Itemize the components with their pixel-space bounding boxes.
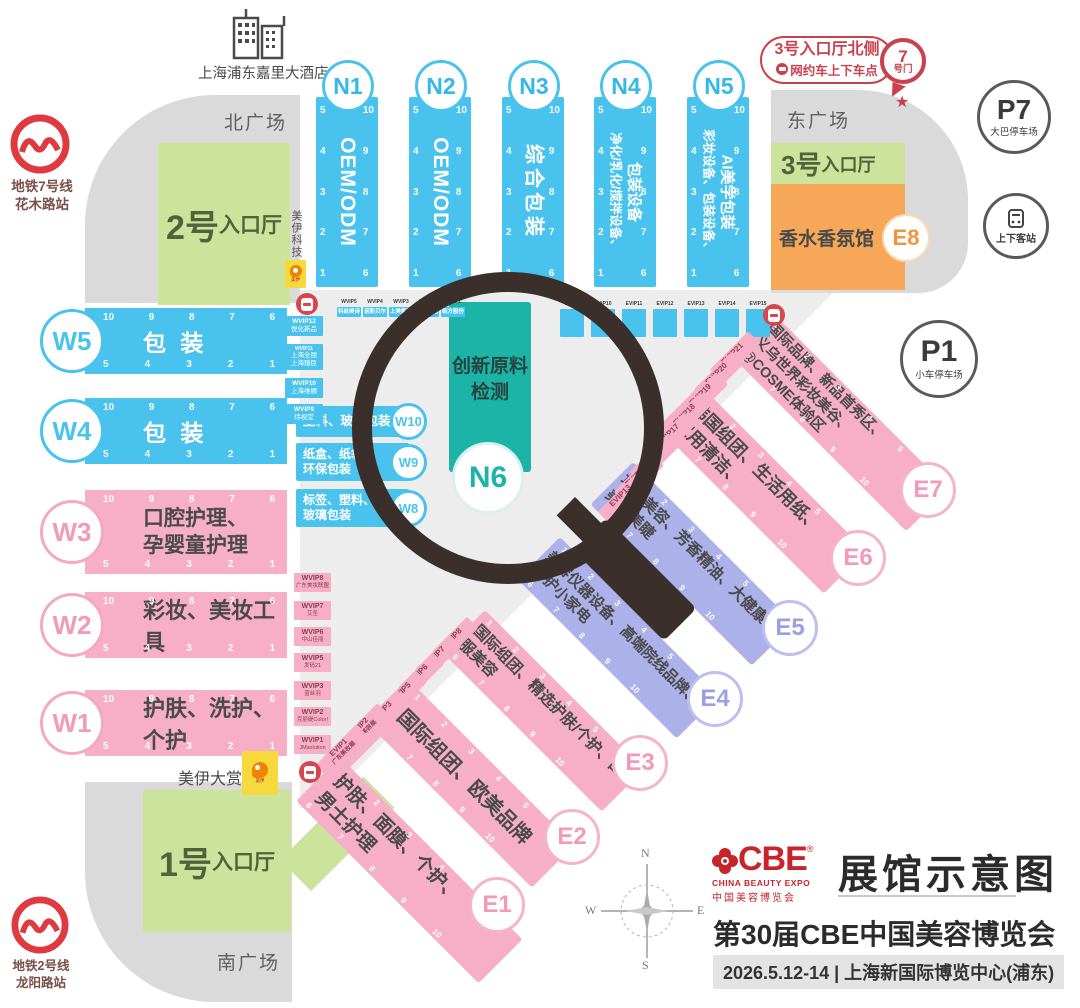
hall-circle-e5[interactable]: E5 (762, 600, 818, 656)
hall-w3[interactable]: 109876 54321 口腔护理、 孕婴童护理 (85, 490, 287, 574)
gate-7-star: ★ (895, 92, 909, 112)
hall-w1[interactable]: 109876 54321 护肤、洗护、个护 (85, 690, 287, 756)
booth-wvip3[interactable]: WVIP3 蓝丝羽 (294, 681, 331, 700)
south-plaza-label: 南广场 (217, 948, 280, 975)
metro-line7-icon (10, 114, 70, 174)
hall-n1-label: OEM/ODM (333, 137, 361, 247)
hall-circle-n1[interactable]: N1 (322, 60, 374, 112)
gate-7-pin: 7 号门 (880, 38, 926, 84)
meiyi-tech-label: 美伊科技 (288, 210, 304, 258)
booth-wvip9[interactable]: WVIP9 炜视堂 (285, 404, 323, 424)
metro-line2-label: 地铁2号线 龙阳路站 (0, 958, 82, 992)
meiyi-tech-badge: 美伊 (285, 260, 306, 288)
parking-p7[interactable]: P7 大巴停车场 (977, 80, 1051, 154)
entrance-2-number: 2号 (166, 200, 219, 249)
meiyi-award-badge: 美伊 (242, 751, 278, 795)
hall-n5[interactable]: 54321 109876 AI美学包装 彩妆设备、包装设备、 (687, 97, 749, 287)
hall-n4-sublabel: 净化/乳化/搅拌设备、 (606, 99, 623, 285)
hall-circle-e7[interactable]: E7 (900, 462, 956, 518)
hall-n3[interactable]: 54321 109876 综合包装 (502, 97, 564, 287)
hall-n2[interactable]: 54321 109876 OEM/ODM (409, 97, 471, 287)
booth-wvip4-top[interactable]: WVIP4 诺斯贝尔 (363, 300, 387, 317)
hall-n4[interactable]: 54321 109876 包装设备 净化/乳化/搅拌设备、 (594, 97, 656, 287)
hall-circle-e8[interactable]: E8 (882, 214, 930, 262)
booth-wvip5[interactable]: WVIP5 发码21 (294, 653, 331, 672)
entrance-hall-1[interactable]: 1号 入口厅 (143, 790, 291, 932)
restroom-icon (296, 293, 318, 315)
metro-line2-icon (11, 896, 69, 954)
hall-circle-e3[interactable]: E3 (612, 735, 668, 791)
booth-evip-row-4[interactable]: EVIP12 (653, 302, 677, 337)
booth-wvip8[interactable]: WVIP8 广东美妆联盟 (294, 573, 331, 592)
booth-wvip6[interactable]: WVIP6 中山佳丽 (294, 627, 331, 646)
hall-circle-w3[interactable]: W3 (40, 500, 104, 564)
hall-circle-e6[interactable]: E6 (830, 530, 886, 586)
booth-wvip12[interactable]: WVIP12 悦化新品 (285, 316, 323, 336)
entrance-3-suffix: 入口厅 (821, 151, 875, 177)
restroom-icon (763, 304, 785, 326)
booth-wvip10[interactable]: WVIP10 上海维娜 (285, 378, 323, 398)
hall-w4[interactable]: 109876 54321 包 装 (85, 398, 287, 464)
booth-evip-row-5[interactable]: EVIP13 (684, 302, 708, 337)
date-venue-bar: 2026.5.12-14 | 上海新国际博览中心(浦东) (713, 955, 1064, 989)
magnifier-icon (352, 272, 664, 584)
north-plaza-label: 北广场 (224, 108, 287, 135)
hotel-icon (222, 8, 290, 60)
entrance-1-number: 1号 (159, 837, 212, 886)
booth-wvip7[interactable]: WVIP7 艾圣 (294, 601, 331, 620)
entrance-3-number: 3号 (781, 145, 821, 182)
hall-n5-sublabel: 彩妆设备、包装设备、 (699, 99, 716, 285)
hotel-label: 上海浦东嘉里大酒店 (198, 62, 329, 83)
cbe-flower-icon (712, 844, 738, 876)
expo-title: 第30届CBE中国美容博览会 (713, 913, 1055, 953)
booth-evip-row-6[interactable]: EVIP14 (715, 302, 739, 337)
hall-n1[interactable]: 54321 109876 OEM/ODM (316, 97, 378, 287)
compass-rose (585, 850, 709, 972)
hall-circle-n2[interactable]: N2 (415, 60, 467, 112)
east-plaza-label: 东广场 (787, 106, 850, 133)
metro-line7-label: 地铁7号线 花木路站 (0, 178, 84, 214)
hall-circle-w4[interactable]: W4 (40, 399, 104, 463)
meiyi-logo-icon (252, 762, 268, 778)
parking-p1[interactable]: P1 小车停车场 (900, 320, 978, 398)
booth-wvip5-top[interactable]: WVIP5 科丝美诗 (337, 300, 361, 317)
map-title: 展馆示意图 (838, 842, 1058, 900)
hall-n2-label: OEM/ODM (426, 137, 454, 247)
restroom-icon (299, 761, 321, 783)
hall-circle-n4[interactable]: N4 (600, 60, 652, 112)
map-title-underline (838, 895, 1016, 897)
perfume-hall-label: 香水香氛馆 (771, 224, 874, 251)
hall-circle-w2[interactable]: W2 (40, 593, 104, 657)
hall-circle-w1[interactable]: W1 (40, 691, 104, 755)
hall-circle-n3[interactable]: N3 (508, 60, 560, 112)
compass: N E S W (585, 850, 709, 972)
hall-w2[interactable]: 109876 54321 彩妆、美妆工具 (85, 592, 287, 658)
hall-circle-e4[interactable]: E4 (687, 671, 743, 727)
hall-circle-e1[interactable]: E1 (469, 877, 525, 933)
meiyi-award-label: 美伊大赏 (178, 765, 242, 789)
ride-hailing-note: 3号入口厅北侧 网约车上下车点 (760, 36, 894, 84)
bus-icon (1005, 208, 1027, 230)
booth-wvip11[interactable]: WVIP11 上海全丽 上海臻臣 (285, 344, 323, 370)
car-icon (776, 63, 788, 75)
entrance-hall-2[interactable]: 2号 入口厅 (158, 143, 290, 305)
venue-map: 北广场 2号 入口厅 东广场 3号 入口厅 香水香氛馆 E8 南广场 1号 入口… (0, 0, 1080, 1008)
cbe-logo: CBE ® CHINA BEAUTY EXPO 中国美容博览会 (712, 844, 832, 904)
booth-wvip1[interactable]: WVIP1 JMsolution (294, 735, 331, 754)
hall-circle-n5[interactable]: N5 (693, 60, 745, 112)
hall-w5[interactable]: 109876 54321 包 装 (85, 308, 287, 374)
hall-n3-label: 综合包装 (520, 144, 547, 240)
entrance-1-suffix: 入口厅 (212, 846, 275, 876)
entrance-2-suffix: 入口厅 (219, 209, 282, 239)
bus-stop[interactable]: 上下客站 (983, 193, 1049, 259)
entrance-hall-3[interactable]: 3号 入口厅 (771, 143, 905, 184)
hall-circle-e2[interactable]: E2 (544, 809, 600, 865)
meiyi-logo-icon (290, 265, 302, 277)
hall-circle-w5[interactable]: W5 (40, 309, 104, 373)
booth-wvip2[interactable]: WVIP2 克丽缇Color! (294, 707, 331, 726)
hall-w3-label: 口腔护理、 (143, 505, 248, 532)
